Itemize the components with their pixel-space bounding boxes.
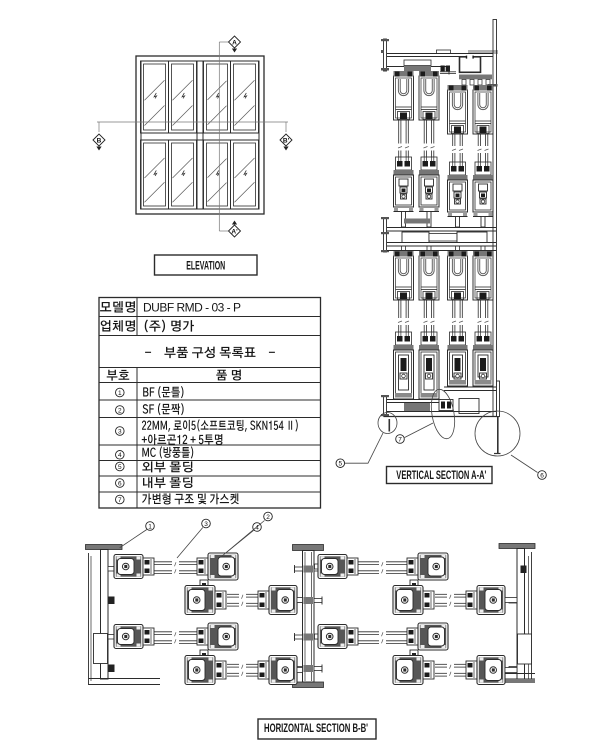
svg-text:6: 6 xyxy=(540,472,544,479)
svg-text:5: 5 xyxy=(118,464,122,471)
svg-text:6: 6 xyxy=(118,480,122,487)
svg-text:B: B xyxy=(97,137,102,144)
svg-text:5: 5 xyxy=(338,461,342,468)
svg-text:3: 3 xyxy=(204,521,208,528)
svg-text:B': B' xyxy=(283,137,290,144)
svg-text:4: 4 xyxy=(118,452,122,459)
svg-text:2: 2 xyxy=(118,407,122,414)
svg-text:7: 7 xyxy=(398,436,402,443)
svg-text:1: 1 xyxy=(118,390,122,397)
svg-text:3: 3 xyxy=(118,428,122,435)
svg-text:7: 7 xyxy=(118,497,122,504)
svg-text:A: A xyxy=(232,39,237,46)
svg-text:VERTICAL SECTION A-A': VERTICAL SECTION A-A' xyxy=(396,468,486,482)
svg-text:1: 1 xyxy=(148,523,152,530)
svg-text:ELEVATION: ELEVATION xyxy=(186,258,225,272)
svg-text:DUBF RMD - 03 - P: DUBF RMD - 03 - P xyxy=(143,301,241,315)
svg-text:2: 2 xyxy=(266,514,270,521)
svg-text:A': A' xyxy=(231,228,238,235)
svg-text:HORIZONTAL SECTION B-B': HORIZONTAL SECTION B-B' xyxy=(264,721,368,735)
